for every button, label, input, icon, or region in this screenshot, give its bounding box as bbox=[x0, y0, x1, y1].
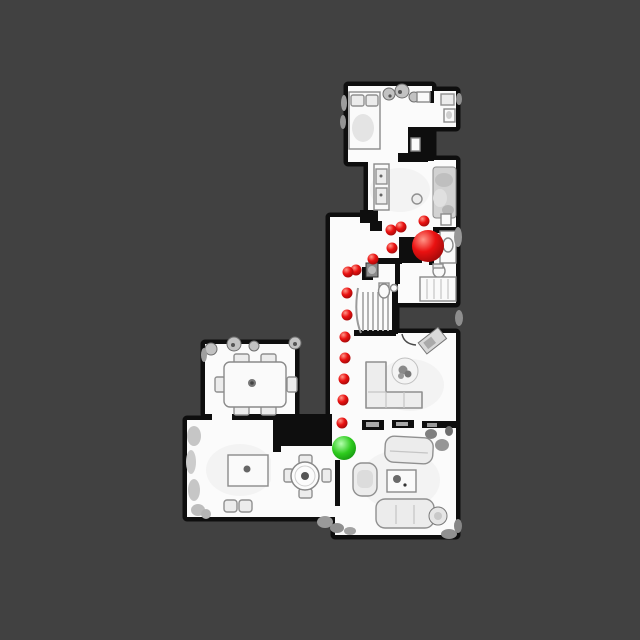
waypoint-dot-11 bbox=[340, 353, 351, 364]
plant bbox=[395, 84, 409, 98]
shelf bbox=[411, 138, 420, 151]
goal-marker[interactable] bbox=[412, 230, 444, 262]
coffee-table bbox=[387, 470, 416, 492]
sofa bbox=[376, 499, 434, 528]
waypoint-dot-2 bbox=[396, 222, 407, 233]
sink bbox=[443, 238, 453, 252]
plant bbox=[249, 341, 259, 351]
clutter bbox=[425, 429, 437, 439]
toilet bbox=[379, 284, 390, 298]
waypoint-dot-1 bbox=[419, 216, 430, 227]
waypoint-dot-10 bbox=[340, 332, 351, 343]
pillow bbox=[351, 95, 364, 106]
floorplan-map[interactable] bbox=[0, 0, 640, 640]
sink bbox=[391, 285, 398, 292]
waypoint-dot-3 bbox=[386, 225, 397, 236]
toilet-tank bbox=[433, 264, 443, 268]
centerpiece bbox=[301, 472, 309, 480]
side-table bbox=[441, 214, 451, 225]
media-console bbox=[366, 422, 379, 427]
waypoint-dot-4 bbox=[387, 243, 398, 254]
nightstand bbox=[417, 92, 430, 102]
map-canvas[interactable] bbox=[0, 0, 640, 640]
loveseat bbox=[384, 436, 433, 464]
chair bbox=[287, 377, 297, 392]
chair bbox=[322, 469, 331, 482]
waypoint-dot-13 bbox=[338, 395, 349, 406]
stool bbox=[239, 500, 252, 512]
waypoint-dot-8 bbox=[342, 288, 353, 299]
table-item bbox=[393, 475, 401, 483]
waypoint-dot-14 bbox=[337, 418, 348, 429]
stool bbox=[412, 194, 422, 204]
stool bbox=[224, 500, 237, 512]
waypoint-dot-7 bbox=[343, 267, 354, 278]
cabinet bbox=[441, 94, 454, 105]
bathtub bbox=[420, 277, 456, 301]
plant bbox=[383, 88, 395, 100]
table-item bbox=[244, 466, 251, 473]
start-marker[interactable] bbox=[332, 436, 356, 460]
waypoint-dot-12 bbox=[339, 374, 350, 385]
pillow bbox=[366, 95, 378, 106]
waypoint-dot-9 bbox=[342, 310, 353, 321]
waypoint-dot-5 bbox=[368, 254, 379, 265]
